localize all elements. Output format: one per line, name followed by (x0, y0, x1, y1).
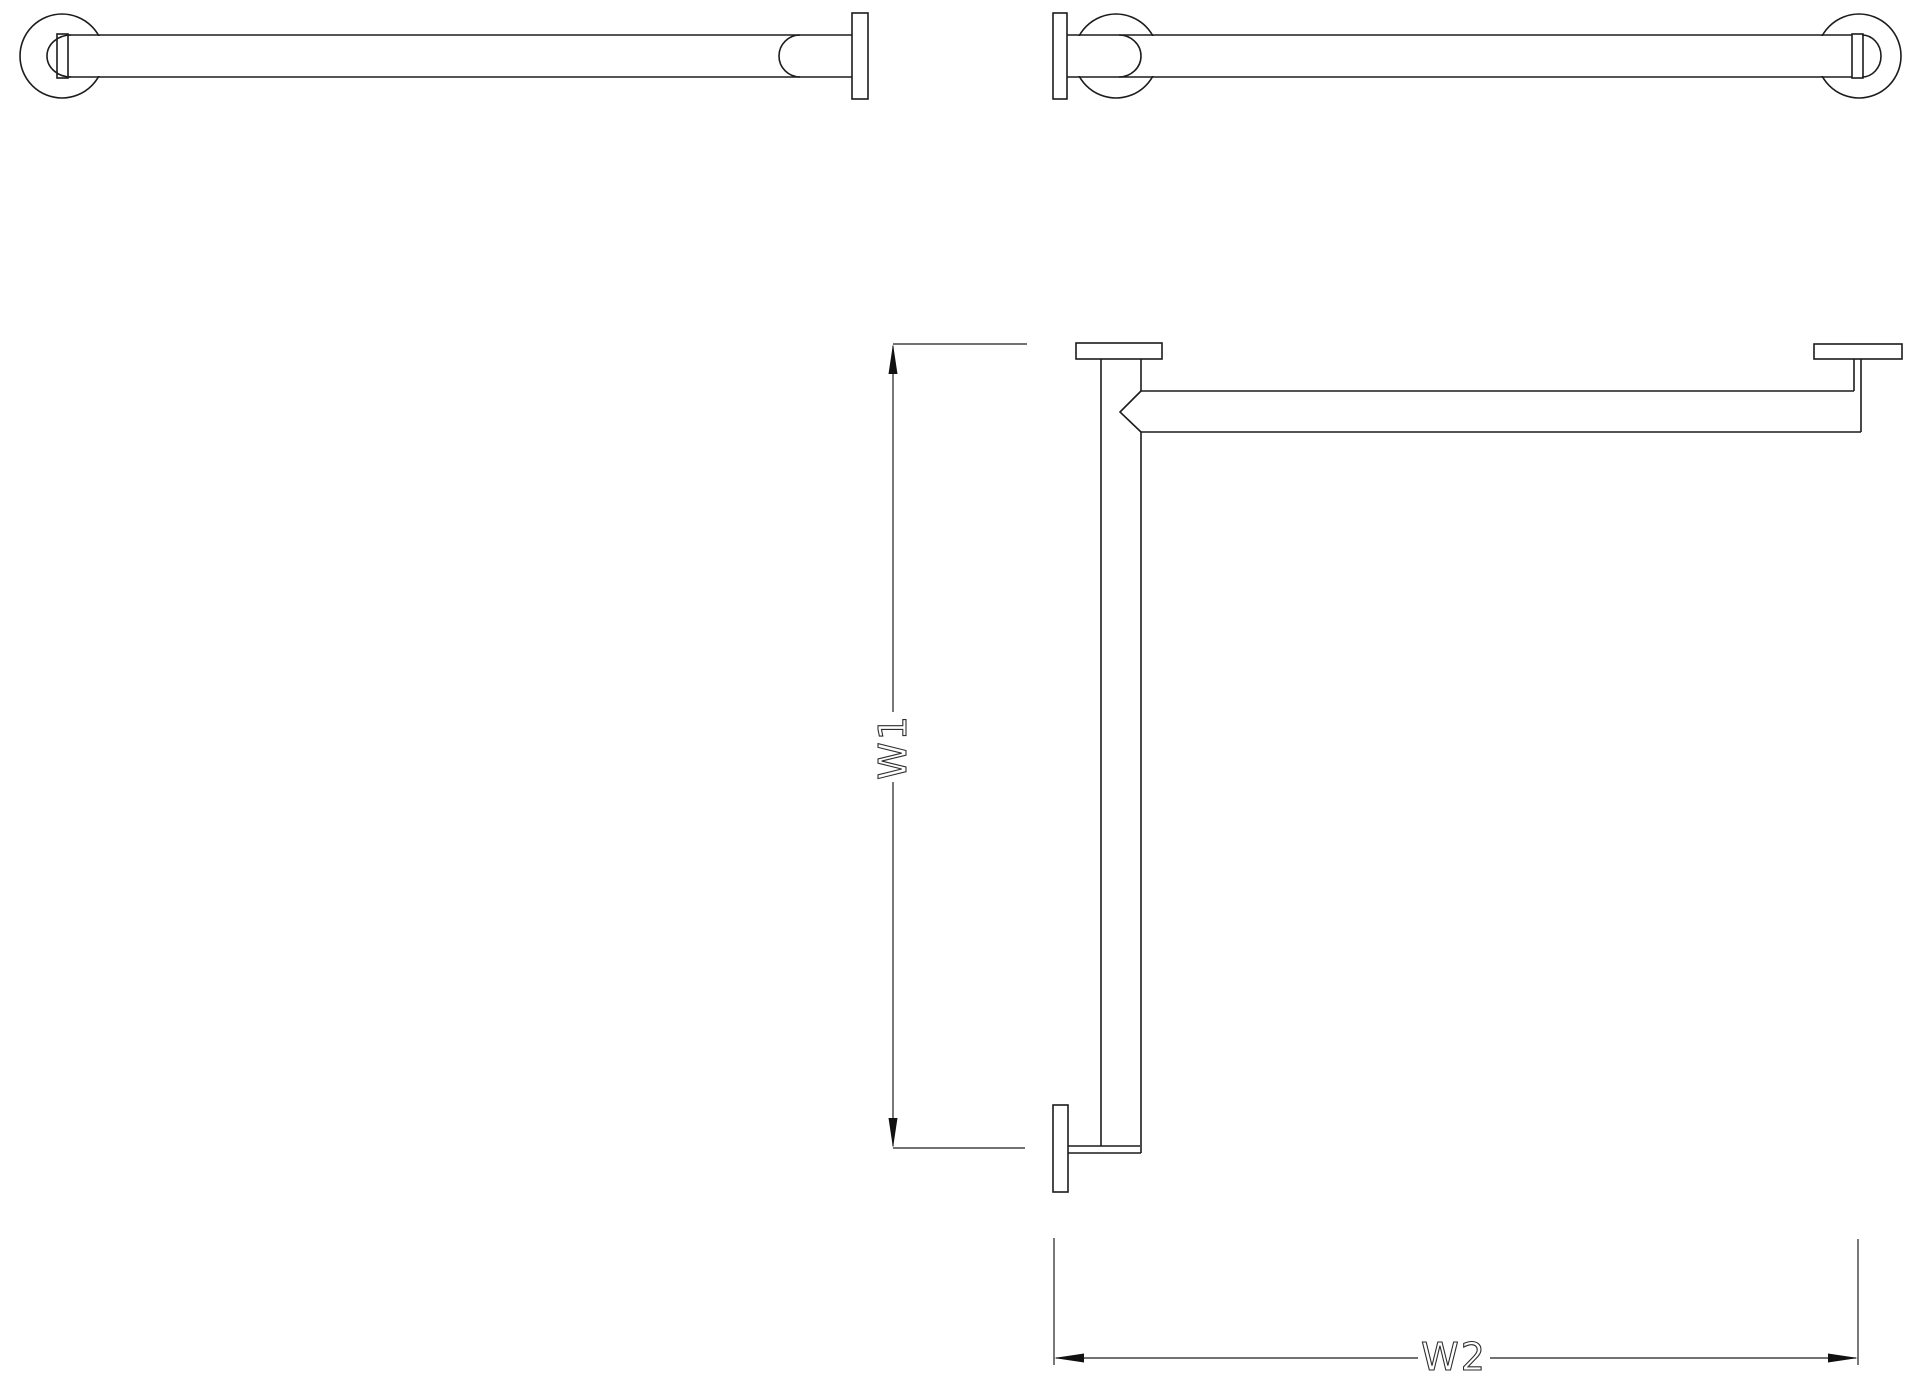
grab-bar-technical-drawing: W1 W2 (0, 0, 1920, 1384)
plan-view (1053, 343, 1902, 1192)
plan-flange-top (1076, 343, 1162, 359)
bar2-body (1067, 36, 1852, 76)
w1-dimension-label: W1 (871, 714, 915, 780)
bar2-wall-bend-arc-right (1862, 35, 1881, 77)
bar1-end-cap-left (57, 34, 68, 78)
bar1-body (57, 36, 852, 76)
plan-corner-miter-chevron (1120, 391, 1141, 432)
corner-flange-plate-bar2 (1053, 13, 1067, 99)
dimension-w2: W2 (1054, 1238, 1858, 1379)
elevation-view-leg1 (20, 13, 868, 99)
w2-arrowhead-left (1054, 1354, 1084, 1363)
bar2-end-cap-right (1852, 34, 1863, 78)
elevation-view-leg2 (1053, 13, 1901, 99)
plan-flange-bottom (1053, 1105, 1068, 1192)
plan-flange-right (1814, 344, 1902, 359)
w2-dimension-label: W2 (1421, 1335, 1487, 1379)
w1-arrowhead-up (889, 344, 898, 374)
corner-flange-plate-bar1 (852, 13, 868, 99)
dimension-w1: W1 (871, 344, 1027, 1148)
drawing-sheet: W1 W2 (0, 0, 1920, 1384)
w2-arrowhead-right (1828, 1354, 1858, 1363)
w1-arrowhead-down (889, 1118, 898, 1148)
